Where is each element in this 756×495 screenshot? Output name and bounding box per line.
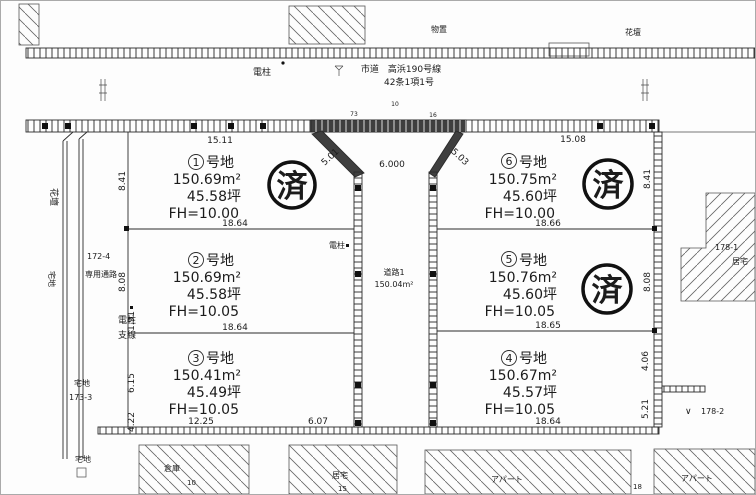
dim-left-lot1: 8.41: [118, 171, 128, 191]
north-west-structure: [19, 4, 39, 45]
warehouse-label: 倉庫: [164, 463, 180, 473]
lot-2-number: 2: [193, 254, 200, 267]
lot-4-area: 150.67m²: [489, 368, 557, 384]
lot-1: 1 号地 150.69m² 45.58坪 FH=10.00 済 18.64: [169, 155, 315, 230]
lot-5-suffix: 号地: [519, 253, 547, 269]
north-shed-building: [289, 6, 365, 44]
lot-3-suffix: 号地: [206, 351, 234, 367]
flowerbed-top-label: 花壇: [625, 27, 641, 37]
south-buildings: [139, 445, 755, 494]
apartment-east-label: アパート: [681, 474, 713, 483]
dim-lot4-bottom: 18.64: [535, 417, 561, 427]
s-takuchi-label: 宅地: [75, 454, 91, 464]
west-flowerbed-label: 花壇: [48, 188, 60, 206]
lot-2-suffix: 号地: [206, 253, 234, 269]
shed-label: 物置: [431, 24, 447, 34]
dim-lot1-top: 15.11: [207, 136, 233, 146]
top-road-north-edge: [26, 48, 755, 58]
lot-2: 2 号地 150.69m² 45.58坪 FH=10.05 18.64: [169, 253, 249, 334]
warehouse-number: 10: [187, 479, 196, 487]
lot-4-suffix: 号地: [519, 351, 547, 367]
site-plan-drawing: 物置 花壇 電柱 市道 高浜190号線 42条1項1号 73 10 16 道路1…: [0, 0, 756, 495]
dim-left-a: 1.91: [127, 311, 137, 331]
top-road-designation: 42条1項1号: [384, 76, 434, 88]
dim-lot6-top: 15.08: [560, 135, 586, 145]
block-east-edge: [654, 132, 662, 427]
sw-parcel-number: 173-3: [69, 393, 92, 402]
lot-1-area: 150.69m²: [173, 172, 241, 188]
lot-5-fh: FH=10.05: [485, 304, 555, 320]
east-house-label: 居宅: [732, 256, 748, 266]
sw-takuchi-label: 宅地: [74, 378, 90, 388]
block-south-edge: [98, 427, 659, 434]
south-house-label: 居宅: [332, 470, 348, 480]
lot-3-area: 150.41m²: [173, 368, 241, 384]
lot-5-tsubo: 45.60坪: [503, 287, 557, 303]
lot-6: 6 号地 150.75m² 45.60坪 FH=10.00 済 18.66: [485, 154, 632, 230]
lot-6-sold-stamp: 済: [593, 168, 625, 204]
dim-left-lot2: 8.08: [118, 272, 128, 292]
lot-3: 3 号地 150.41m² 45.49坪 FH=10.05 12.25 6.07: [169, 351, 328, 428]
dim-lot2-bottom: 18.64: [222, 323, 248, 333]
survey-mark-west: [99, 79, 107, 101]
apartment-west-label: アパート: [491, 475, 523, 484]
lot-5-area: 150.76m²: [489, 270, 557, 286]
road-west-edge: [354, 172, 362, 427]
dim-left-c: 4.22: [127, 412, 137, 432]
east-parcel1: 178-1: [715, 243, 738, 252]
lot-6-number: 6: [506, 155, 513, 168]
lot-1-sold-stamp: 済: [277, 169, 309, 205]
road-east-edge: [429, 172, 437, 427]
west-parcel-number: 172-4: [87, 252, 110, 261]
plan-svg: 物置 花壇 電柱 市道 高浜190号線 42条1項1号 73 10 16 道路1…: [1, 1, 755, 494]
dim-lot1-bottom: 18.64: [222, 219, 248, 229]
lot-4-fh: FH=10.05: [485, 402, 555, 418]
dim-lot3-bottom-e: 6.07: [308, 417, 328, 427]
lot-2-area: 150.69m²: [173, 270, 241, 286]
lot-3-fh: FH=10.05: [169, 402, 239, 418]
lot-3-tsubo: 45.49坪: [187, 385, 241, 401]
lot-4: 4 号地 150.67m² 45.57坪 FH=10.05 18.64: [485, 351, 562, 428]
lot-1-number: 1: [193, 156, 200, 169]
east-boundary-stub: [662, 386, 705, 392]
road-label: 道路1: [383, 267, 404, 277]
dim-lot5-bottom: 18.65: [535, 321, 561, 331]
lot-4-tsubo: 45.57坪: [503, 385, 557, 401]
lot-6-area: 150.75m²: [489, 172, 557, 188]
pole-dot-west: [130, 306, 133, 309]
east-check-mark: ∨: [685, 407, 692, 417]
pole-label-road: 電柱: [329, 240, 345, 250]
s-structure-mark: [77, 468, 86, 477]
south-gap-number: 18: [633, 483, 642, 491]
dim-lot6-bottom: 18.66: [535, 219, 561, 229]
dim-right-b: 5.21: [641, 399, 651, 419]
top-road-name: 市道 高浜190号線: [361, 63, 441, 75]
south-house-number: 15: [338, 485, 347, 493]
road-area: 150.04m²: [375, 280, 414, 289]
dim-road-top-width: 6.000: [379, 160, 405, 170]
survey-mark-east: [641, 79, 649, 101]
pole-dot-road: [346, 244, 349, 247]
lot-1-tsubo: 45.58坪: [187, 189, 241, 205]
west-takuchi-label: 宅地: [47, 271, 57, 287]
apartment-west-building: [425, 450, 631, 494]
east-parcel2: 178-2: [701, 407, 724, 416]
dim-lot3-bottom-w: 12.25: [188, 417, 214, 427]
lot-5: 5 号地 150.76m² 45.60坪 FH=10.05 済 18.65: [485, 252, 631, 332]
private-path-label: 専用通路: [85, 269, 117, 279]
lot-6-tsubo: 45.60坪: [503, 189, 557, 205]
lot-2-tsubo: 45.58坪: [187, 287, 241, 303]
road-mark-10: 10: [391, 101, 399, 108]
pole-label-top: 電柱: [253, 66, 271, 78]
dim-right-a: 4.06: [641, 351, 651, 371]
lot-5-sold-stamp: 済: [592, 273, 624, 309]
private-path: [63, 132, 87, 459]
lot-3-number: 3: [193, 352, 200, 365]
apartment-east-building: [654, 449, 755, 494]
road-mark-16: 16: [429, 112, 437, 119]
road-mark-73: 73: [350, 111, 358, 118]
lot-1-suffix: 号地: [206, 155, 234, 171]
lot-2-fh: FH=10.05: [169, 304, 239, 320]
dim-left-b: 6.15: [127, 373, 137, 393]
entrance-band-ties: [311, 120, 466, 132]
dim-right-lot5: 8.08: [643, 272, 653, 292]
dim-right-lot6: 8.41: [643, 169, 653, 189]
lot-6-suffix: 号地: [519, 155, 547, 171]
road-symbol: [335, 66, 343, 76]
dim-diag-right: 5.03: [449, 147, 470, 168]
pole-dot-top: [281, 61, 284, 64]
lot-5-number: 5: [506, 253, 513, 266]
lot-4-number: 4: [506, 352, 513, 365]
